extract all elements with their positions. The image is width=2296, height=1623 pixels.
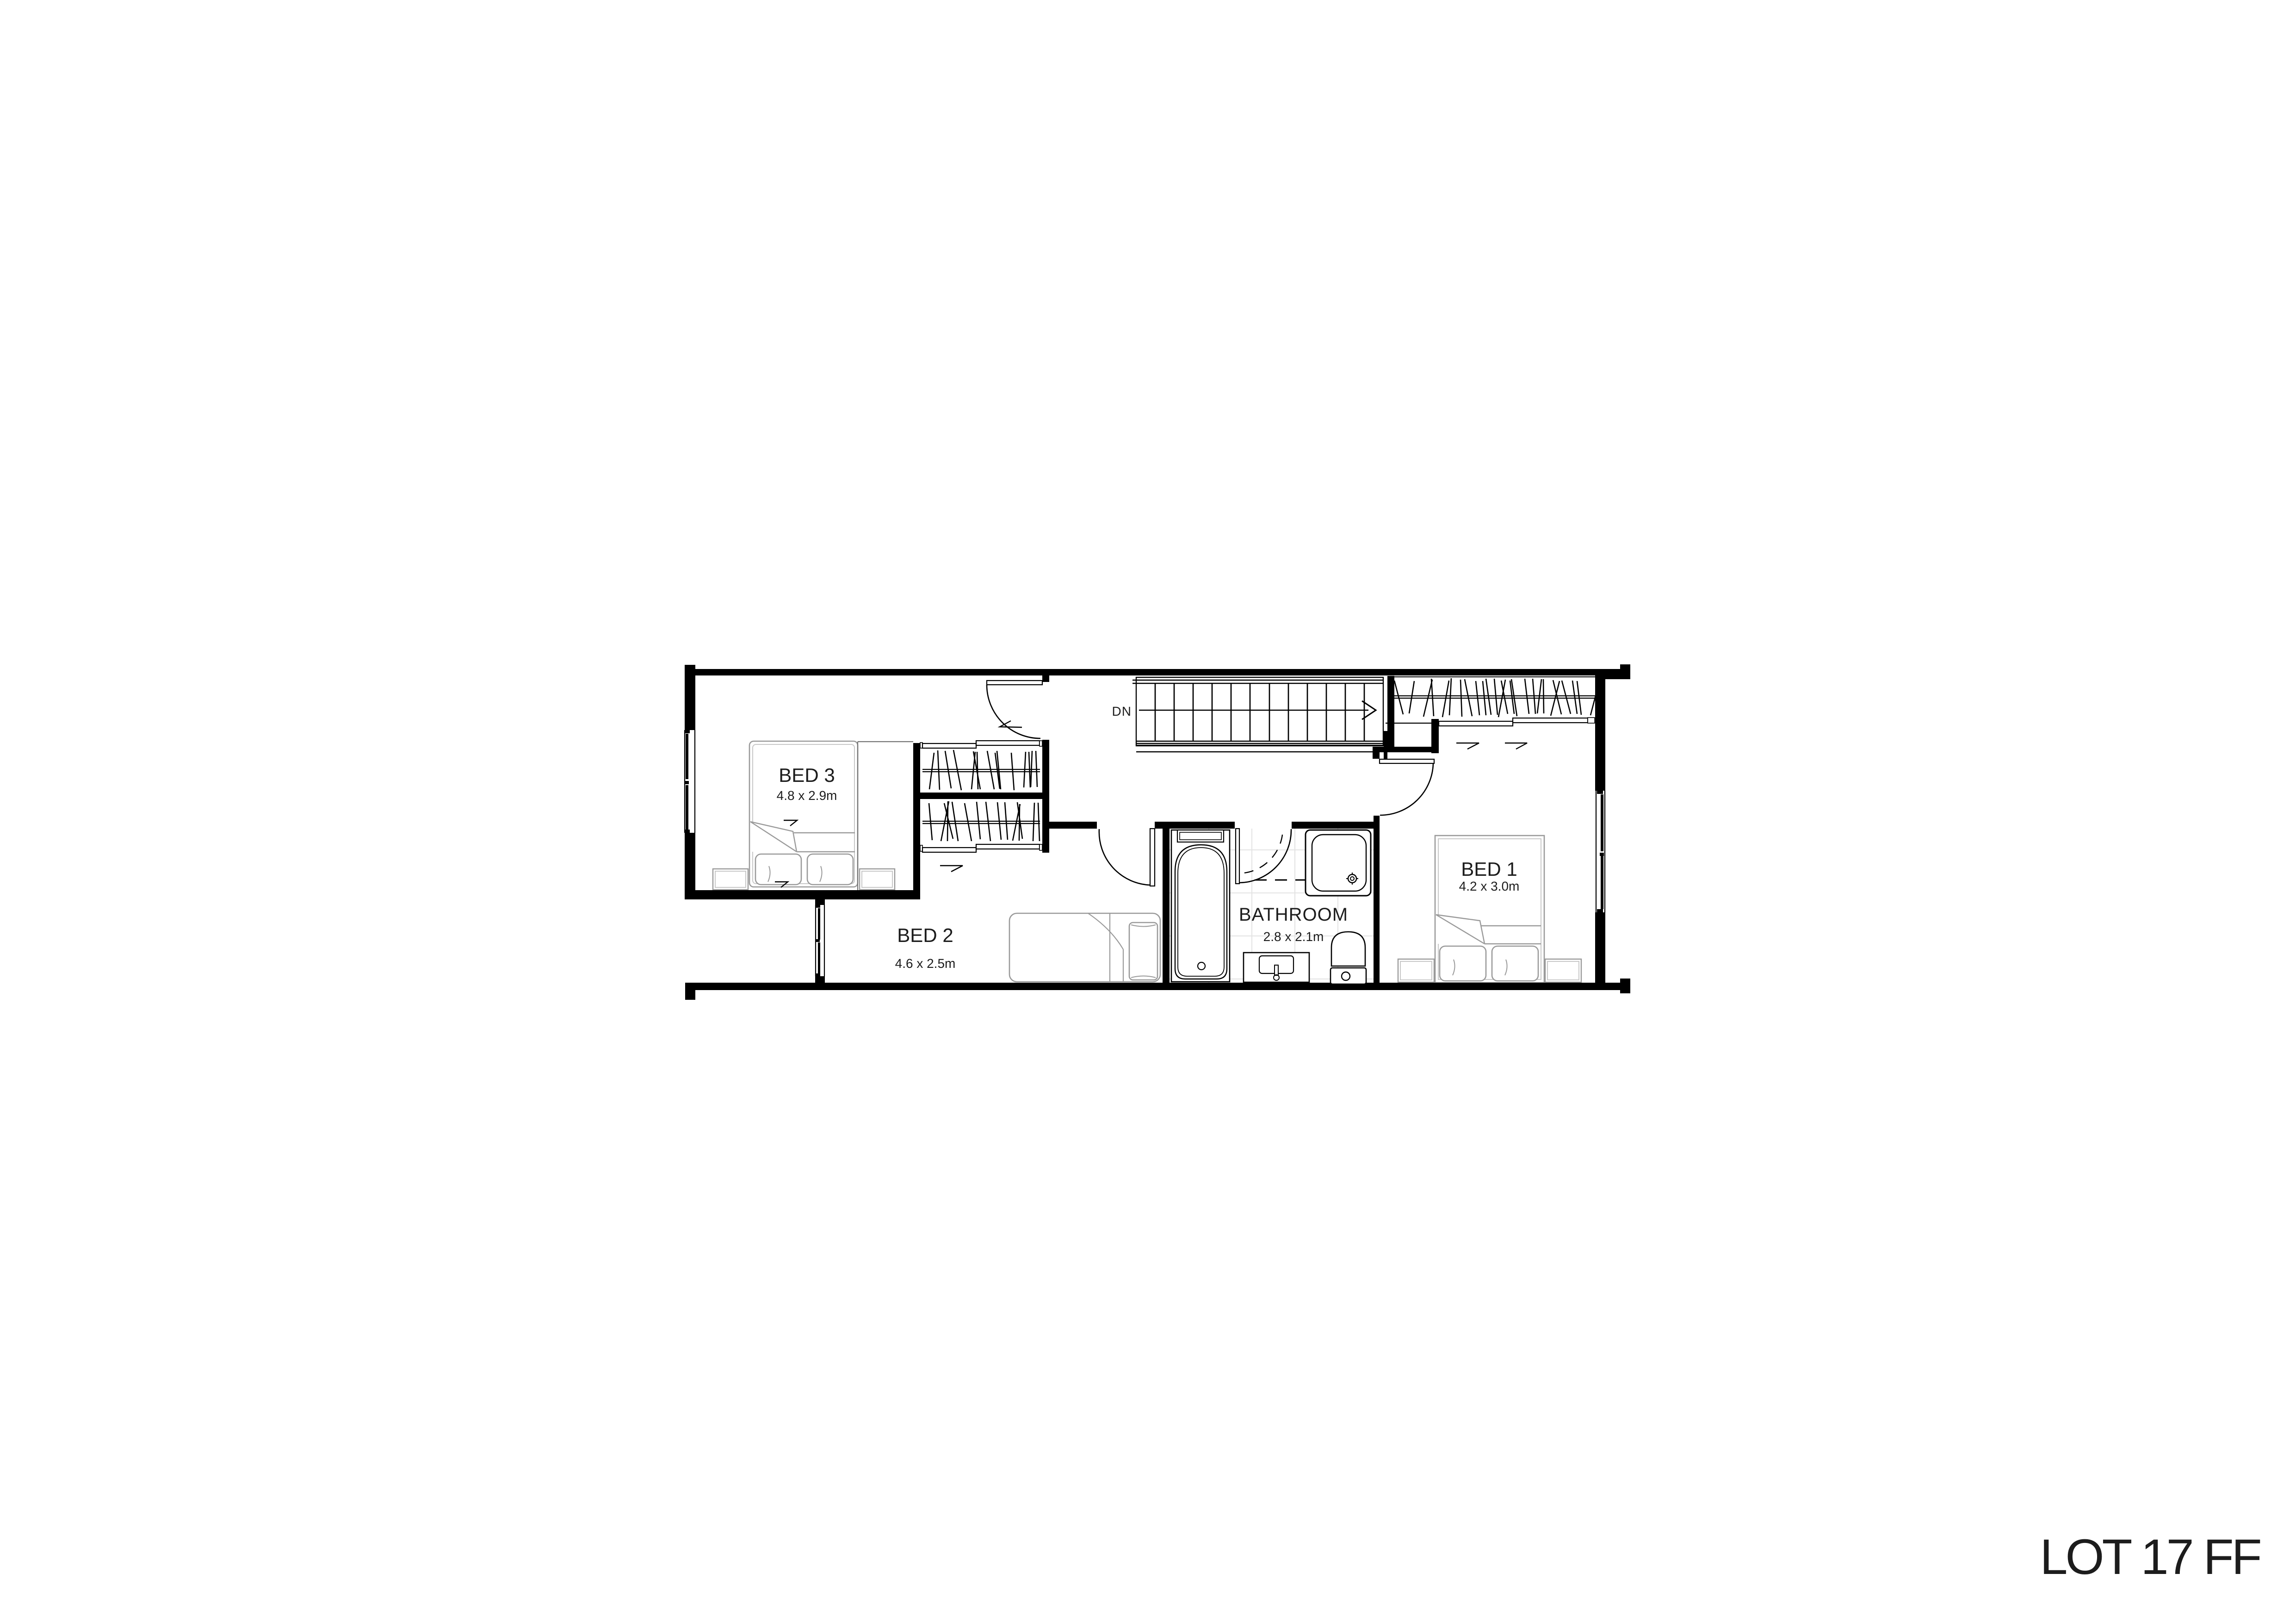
svg-text:BED 3: BED 3 — [779, 764, 835, 786]
svg-text:BED 2: BED 2 — [897, 924, 953, 946]
svg-text:LOT 17 FF: LOT 17 FF — [2040, 1529, 2260, 1585]
svg-text:DN: DN — [1112, 704, 1132, 719]
svg-text:4.6 x 2.5m: 4.6 x 2.5m — [895, 956, 956, 971]
svg-text:BED 1: BED 1 — [1461, 858, 1517, 880]
svg-text:2.8 x 2.1m: 2.8 x 2.1m — [1263, 929, 1324, 944]
svg-text:4.8 x 2.9m: 4.8 x 2.9m — [777, 788, 837, 803]
svg-text:4.2 x 3.0m: 4.2 x 3.0m — [1459, 879, 1520, 893]
svg-text:BATHROOM: BATHROOM — [1239, 904, 1348, 925]
